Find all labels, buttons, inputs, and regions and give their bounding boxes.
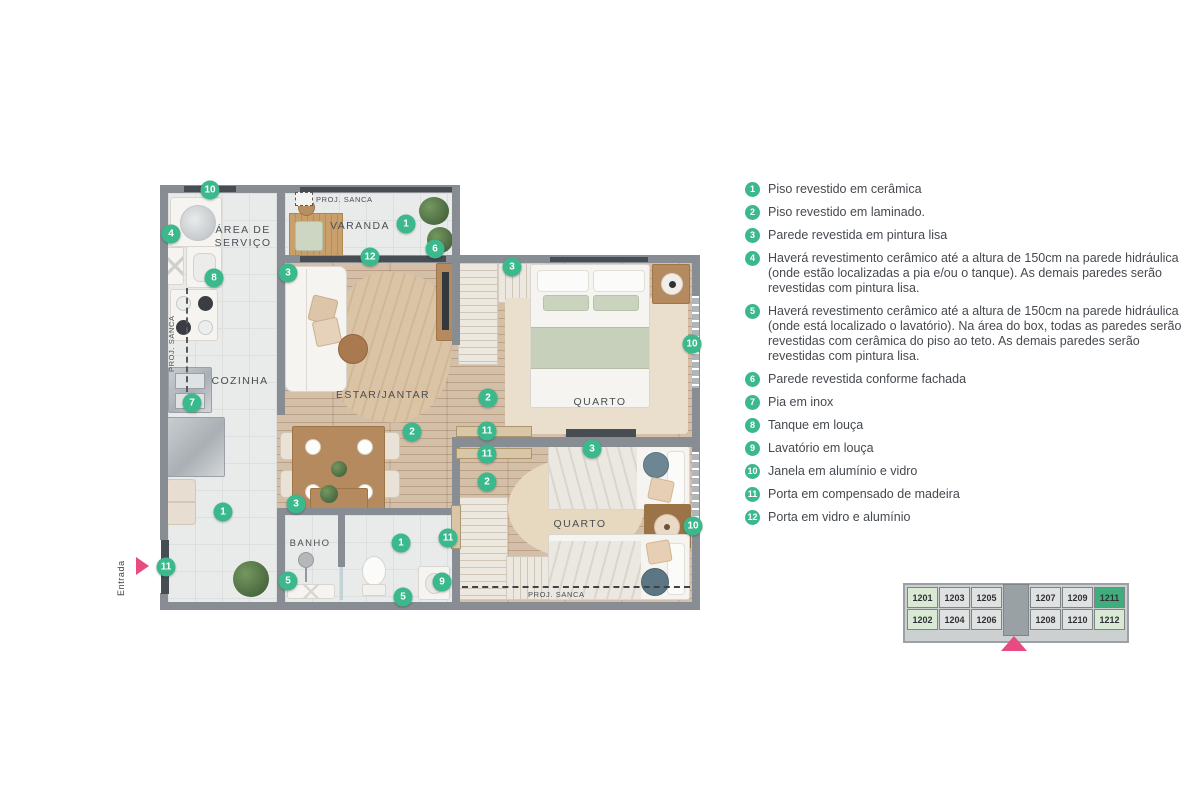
legend-text: Piso revestido em cerâmica [768, 182, 1193, 197]
room-label-banho: BANHO [282, 537, 338, 550]
keyplan-cell-1203: 1203 [939, 587, 970, 608]
plan-marker-5: 5 [279, 572, 298, 591]
plan-marker-3: 3 [583, 440, 602, 459]
keyplan-column: 12031204 [939, 587, 970, 639]
legend-text: Porta em vidro e alumínio [768, 510, 1193, 525]
plan-marker-1: 1 [397, 215, 416, 234]
keyplan-cell-1204: 1204 [939, 609, 970, 630]
plan-marker-6: 6 [426, 240, 445, 259]
legend-text: Piso revestido em laminado. [768, 205, 1193, 220]
legend-item-6: 6Parede revestida conforme fachada [745, 372, 1193, 387]
room-label-area-servico: ÁREA DE SERVIÇO [207, 224, 279, 250]
plan-marker-3: 3 [503, 258, 522, 277]
plan-marker-3: 3 [287, 495, 306, 514]
keyplan-column: 12111212 [1094, 587, 1125, 639]
keyplan-cell-1212: 1212 [1094, 609, 1125, 630]
plan-marker-2: 2 [478, 473, 497, 492]
shower-head-icon [298, 552, 314, 568]
proj-sanca-line-kitchen [186, 288, 188, 392]
legend-number-badge: 12 [745, 510, 760, 525]
room-label-cozinha: COZINHA [204, 375, 276, 388]
legend-item-5: 5Haverá revestimento cerâmico até a altu… [745, 304, 1193, 364]
bedroom1-nightstand [652, 264, 690, 304]
legend-text: Janela em alumínio e vidro [768, 464, 1193, 479]
legend-text: Pia em inox [768, 395, 1193, 410]
room-label-quarto-2: QUARTO [540, 518, 620, 531]
plan-marker-2: 2 [479, 389, 498, 408]
room-label-varanda: VARANDA [322, 220, 398, 233]
plan-marker-1: 1 [214, 503, 233, 522]
unit-keyplan: 1201120212031204120512061207120812091210… [903, 583, 1143, 658]
entrada-arrow-icon [136, 557, 149, 575]
keyplan-cell-1206: 1206 [971, 609, 1002, 630]
plan-marker-9: 9 [433, 573, 452, 592]
legend-number-badge: 4 [745, 251, 760, 266]
legend-item-3: 3Parede revestida em pintura lisa [745, 228, 1193, 243]
shower-glass [340, 567, 343, 600]
legend-text: Tanque em louça [768, 418, 1193, 433]
legend-item-10: 10Janela em alumínio e vidro [745, 464, 1193, 479]
keyplan-position-arrow-icon [1001, 636, 1027, 651]
entrada-label: Entrada [116, 536, 126, 596]
legend-item-7: 7Pia em inox [745, 395, 1193, 410]
stove [170, 289, 218, 341]
proj-sanca-line-bedroom2 [462, 586, 690, 588]
legend-number-badge: 11 [745, 487, 760, 502]
keyplan-column: 12071208 [1030, 587, 1061, 639]
entry-bench [166, 479, 196, 525]
legend-item-12: 12Porta em vidro e alumínio [745, 510, 1193, 525]
plan-marker-11: 11 [439, 529, 458, 548]
keyplan-cell-1201: 1201 [907, 587, 938, 608]
varanda-plant [419, 197, 449, 225]
legend-number-badge: 7 [745, 395, 760, 410]
legend-list: 1Piso revestido em cerâmica2Piso revesti… [745, 182, 1193, 525]
plan-marker-2: 2 [403, 423, 422, 442]
legend-text: Haverá revestimento cerâmico até a altur… [768, 251, 1193, 296]
legend-number-badge: 8 [745, 418, 760, 433]
bedroom2-closet [458, 497, 508, 600]
proj-sanca-label-varanda: PROJ. SANCA [316, 195, 373, 204]
kitchen-plant [233, 561, 269, 597]
legend-text: Lavatório em louça [768, 441, 1193, 456]
legend-number-badge: 1 [745, 182, 760, 197]
proj-sanca-label-kitchen: PROJ. SANCA [167, 300, 176, 372]
bedroom2-bed [548, 446, 690, 510]
legend-number-badge: 9 [745, 441, 760, 456]
plan-marker-10: 10 [201, 181, 220, 200]
legend-text: Parede revestida em pintura lisa [768, 228, 1193, 243]
legend-number-badge: 5 [745, 304, 760, 319]
plan-marker-4: 4 [162, 225, 181, 244]
legend-item-4: 4Haverá revestimento cerâmico até a altu… [745, 251, 1193, 296]
plan-marker-10: 10 [683, 335, 702, 354]
legend-item-9: 9Lavatório em louça [745, 441, 1193, 456]
sideboard-plant [320, 485, 338, 503]
plan-marker-8: 8 [205, 269, 224, 288]
legend-text: Parede revestida conforme fachada [768, 372, 1193, 387]
shower-stem [305, 568, 307, 582]
bedroom1-closet [458, 263, 498, 365]
keyplan-core [1003, 584, 1029, 636]
bedroom1-bed [530, 264, 650, 408]
plan-marker-10: 10 [684, 517, 703, 536]
service-cabinet [166, 247, 184, 285]
plan-marker-11: 11 [478, 422, 497, 441]
plan-marker-5: 5 [394, 588, 413, 607]
plan-marker-12: 12 [361, 248, 380, 267]
fridge [167, 417, 225, 477]
keyplan-cell-1210: 1210 [1062, 609, 1093, 630]
room-label-quarto-1: QUARTO [560, 396, 640, 409]
proj-sanca-label-bedroom2: PROJ. SANCA [528, 590, 585, 599]
plan-marker-11: 11 [478, 445, 497, 464]
coffee-table [338, 334, 368, 364]
keyplan-column: 12091210 [1062, 587, 1093, 639]
finishes-legend: 1Piso revestido em cerâmica2Piso revesti… [745, 182, 1193, 533]
legend-number-badge: 10 [745, 464, 760, 479]
legend-text: Porta em compensado de madeira [768, 487, 1193, 502]
proj-sanca-box-varanda [295, 192, 313, 206]
legend-number-badge: 3 [745, 228, 760, 243]
legend-number-badge: 6 [745, 372, 760, 387]
keyplan-cell-1209: 1209 [1062, 587, 1093, 608]
bedroom2-tv [566, 429, 636, 437]
legend-text: Haverá revestimento cerâmico até a altur… [768, 304, 1193, 364]
window-bedroom2-side [692, 452, 699, 524]
floorplan-page: ÁREA DE SERVIÇO VARANDA COZINHA ESTAR/JA… [0, 0, 1200, 800]
sideboard [310, 488, 368, 509]
legend-item-11: 11Porta em compensado de madeira [745, 487, 1193, 502]
toilet [362, 556, 386, 586]
toilet-tank [362, 584, 386, 596]
legend-item-1: 1Piso revestido em cerâmica [745, 182, 1193, 197]
window-bedroom1-top [550, 257, 648, 262]
keyplan-building: 1201120212031204120512061207120812091210… [903, 583, 1129, 643]
keyplan-cell-1207: 1207 [1030, 587, 1061, 608]
legend-item-8: 8Tanque em louça [745, 418, 1193, 433]
keyplan-column: 12011202 [907, 587, 938, 639]
room-label-estar-jantar: ESTAR/JANTAR [333, 389, 433, 402]
plan-marker-3: 3 [279, 264, 298, 283]
keyplan-cell-1202: 1202 [907, 609, 938, 630]
legend-number-badge: 2 [745, 205, 760, 220]
legend-item-2: 2Piso revestido em laminado. [745, 205, 1193, 220]
keyplan-cell-1208: 1208 [1030, 609, 1061, 630]
sofa [285, 266, 347, 392]
tv [442, 272, 449, 330]
plan-marker-1: 1 [392, 534, 411, 553]
keyplan-column: 12051206 [971, 587, 1002, 639]
plan-marker-7: 7 [183, 394, 202, 413]
window-varanda [300, 187, 452, 192]
plan-marker-11: 11 [157, 558, 176, 577]
keyplan-cell-1205: 1205 [971, 587, 1002, 608]
keyplan-cell-1211: 1211 [1094, 587, 1125, 608]
